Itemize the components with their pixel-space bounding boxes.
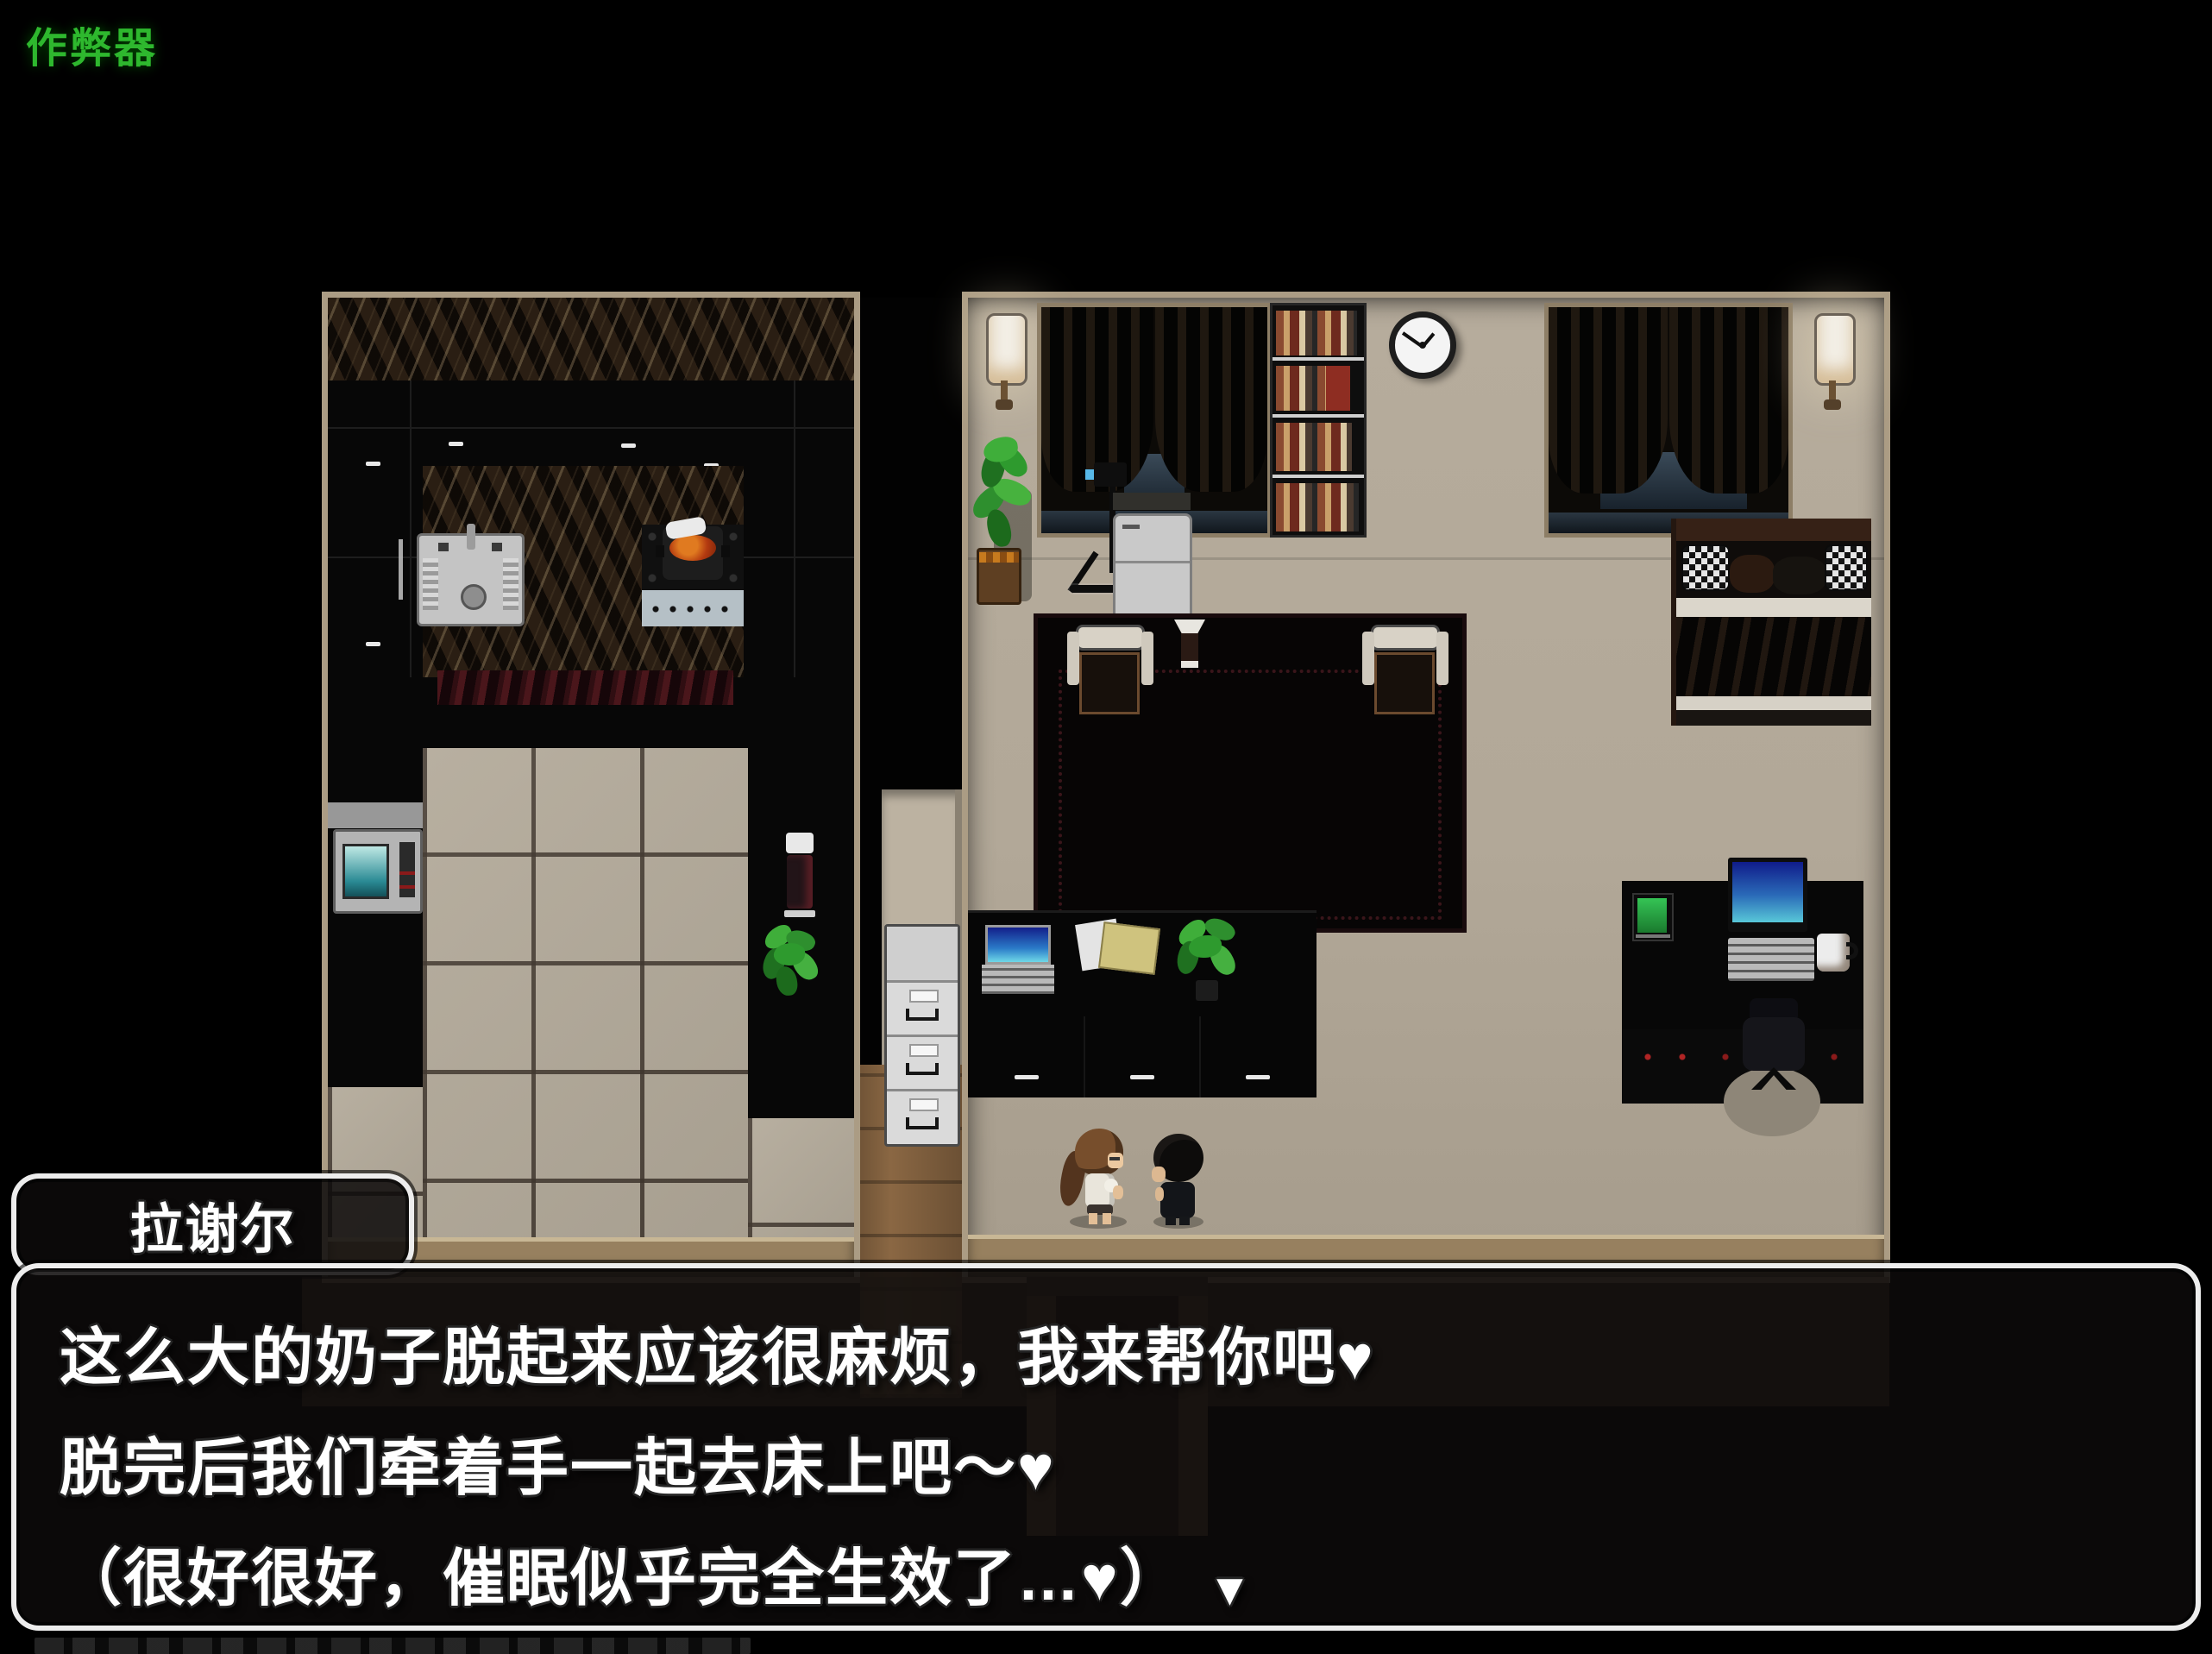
coffee-maker-lid [786,833,814,853]
sink-knob [492,543,502,551]
speaker-name: 拉谢尔 [129,1185,295,1263]
green-device [1632,893,1674,941]
bed-foot-strip [1676,696,1871,710]
appliance-seam [1115,561,1190,563]
coffee-mug [1817,934,1850,972]
drawer-label [909,990,939,1003]
curtain-left [1549,307,1668,494]
table-vase [1172,619,1207,671]
dining-set [1034,613,1467,933]
sideboard-plant [1172,915,1241,1004]
microwave-window [342,844,389,899]
girl-leg [1103,1213,1111,1224]
sink-vent [503,558,518,610]
plant-pot [977,548,1021,605]
houndstooth-pillow [1825,544,1868,591]
bed-pillow-area [1676,541,1871,598]
wall-lamp-right [1808,313,1857,418]
plant-pot-small [1196,980,1218,1001]
lamp-base [1824,399,1841,410]
pot-handle [656,545,664,557]
sideboard-handle [1130,1075,1154,1079]
dialogue-line: 脱完后我们牵着手一起去床上吧～♥ [60,1413,2161,1524]
monitor-screen [1732,862,1803,922]
dialogue-window[interactable]: 这么大的奶子脱起来应该很麻烦，我来帮你吧♥ 脱完后我们牵着手一起去床上吧～♥ （… [11,1263,2201,1631]
kitchen-room [322,292,860,1283]
dialogue-line: （很好很好，催眠似乎完全生效了…♥）▼ [60,1524,2161,1640]
chair-wing [1362,632,1374,685]
tall-plant [968,437,1035,612]
dining-chair-right [1362,625,1448,735]
lamp-stem [1829,380,1836,401]
chair-back [1076,625,1145,651]
sideboard [968,910,1317,1097]
kitchen-counter-top-marble [328,298,854,380]
kitchen-left-counter-column [328,748,423,1087]
wall-lamp-left [980,313,1028,418]
drawer-handle [906,1009,939,1021]
appliance-handle [1122,525,1140,529]
drawer-label [909,1098,939,1111]
game-screen: 作弊器 拉谢尔 这么大的奶子脱起来应该很麻烦，我来帮你吧♥ 脱完后我们牵着手一起… [0,0,2212,1654]
dialogue-line: 这么大的奶子脱起来应该很麻烦，我来帮你吧♥ [60,1303,2161,1413]
gray-appliance [1113,513,1192,620]
microwave-controls [399,842,415,897]
bed-sheet-strip [1676,598,1871,617]
lamp-base [996,399,1013,410]
shelf-edge [1273,357,1364,361]
cheat-tool-label[interactable]: 作弊器 [14,10,170,78]
bedroom-room [962,292,1890,1283]
chair-wing [1141,632,1153,685]
boy-body [1160,1182,1195,1218]
clock-center-dot [1419,342,1426,349]
cooking-pot [663,526,723,580]
drawer-handle [906,1117,939,1129]
bookshelf-row [1276,483,1359,531]
appliance-panel [1113,493,1191,510]
girl-leg [1089,1213,1097,1224]
bookshelf-row [1276,311,1357,355]
office-chair [1743,998,1805,1093]
pot-stew [669,535,716,561]
pot-handle [721,545,730,557]
sideboard-handle [1246,1075,1270,1079]
sideboard-handle [1015,1075,1039,1079]
boy-face [1152,1167,1166,1182]
houndstooth-pillow [1681,544,1730,591]
lamp-stem [1001,380,1008,401]
clipped-watermark-text [35,1638,751,1654]
vase-base [1181,661,1198,668]
girl-shadow [1070,1215,1127,1229]
dialogue-text: 脱完后我们牵着手一起去床上吧～♥ [60,1434,1056,1503]
kitchen-counter-plant [757,924,822,1003]
chair-seat [1079,652,1140,714]
shelf-edge [1273,475,1364,478]
laptop [982,925,1054,996]
dialogue-text: （很好很好，催眠似乎完全生效了…♥） [60,1544,1184,1613]
green-device-base [1636,934,1670,938]
green-device-screen [1637,898,1667,933]
desktop-keyboard [1728,938,1814,981]
bed-base [1676,710,1871,726]
sink-dial [461,584,487,610]
window-right [1544,303,1793,538]
dining-chair-left [1067,625,1153,735]
papers [1078,918,1158,973]
vase-top [1174,619,1205,633]
file-cabinet [884,924,960,1147]
cabinet-door-edge [399,539,403,600]
folder [1098,921,1160,975]
lamp-shade [986,313,1027,386]
sink-knob [438,543,449,551]
file-cabinet-drawer [887,1037,958,1091]
sink-faucet [467,524,475,550]
vase-body [1181,633,1198,661]
coffee-maker-base [784,910,815,917]
counter-red-marble-strip [437,670,733,705]
pot-band [979,552,1019,563]
coffee-maker [784,833,815,919]
kitchen-floor-tiles [423,748,748,1237]
bed-blanket [1676,617,1871,696]
continue-indicator[interactable]: ▼ [1208,1565,1254,1615]
kitchen-sink-unit [417,533,525,626]
girl-face [1108,1153,1123,1168]
microwave [333,829,423,914]
chair-wing [1067,632,1079,685]
kitchen-stove [642,525,744,626]
wall-clock [1389,311,1456,379]
lamp-shade [1814,313,1856,386]
corridor [860,298,962,1398]
drawer-label [909,1044,939,1057]
file-cabinet-drawer [887,1091,958,1143]
cabinet-handle [449,442,463,446]
sink-vent [423,558,438,610]
speaker-name-box: 拉谢尔 [11,1173,414,1275]
microwave-shelf [328,802,423,828]
chair-wing [1436,632,1448,685]
dialogue-text: 这么大的奶子脱起来应该很麻烦，我来帮你吧♥ [60,1324,1375,1393]
bed-headboard [1676,519,1871,541]
chair-seat [1374,652,1435,714]
stove-panel [642,590,744,626]
boy-arm [1155,1187,1164,1201]
chair-back [1371,625,1440,651]
camera-light [1085,469,1094,480]
kitchen-floor-tiles [748,1118,854,1237]
sideboard-seam [1199,1016,1201,1097]
drawer-handle [906,1063,939,1075]
sideboard-seam [1084,1016,1085,1097]
chair-seat-pad [1743,1017,1805,1071]
bookshelf-row [1276,423,1352,471]
file-cabinet-top-panel [887,927,958,983]
dark-pillow [1773,557,1826,594]
brown-pillow [1730,555,1775,593]
coffee-carafe [787,855,813,909]
camera-body [1094,462,1127,487]
boy-leg [1179,1217,1190,1225]
npc-girl-sprite[interactable] [1065,1129,1134,1230]
laptop-screen [985,925,1051,965]
boy-leg [1166,1217,1176,1225]
shelf-edge [1273,414,1364,418]
laptop-keyboard [982,965,1054,994]
file-cabinet-drawer [887,983,958,1037]
curtain-right [1669,307,1788,494]
desktop-monitor [1728,858,1807,932]
curtain-right [1155,307,1267,492]
npc-boy-sprite[interactable] [1150,1134,1207,1230]
cabinet-handle [621,443,636,448]
girl-arm [1113,1185,1123,1199]
shelf-red-book [1326,366,1350,411]
cabinet-seam [328,427,854,429]
bed [1671,519,1871,726]
girl-glasses [1109,1157,1120,1160]
bookshelf [1270,303,1367,538]
cabinet-handle [366,462,380,466]
cabinet-handle [366,642,380,646]
